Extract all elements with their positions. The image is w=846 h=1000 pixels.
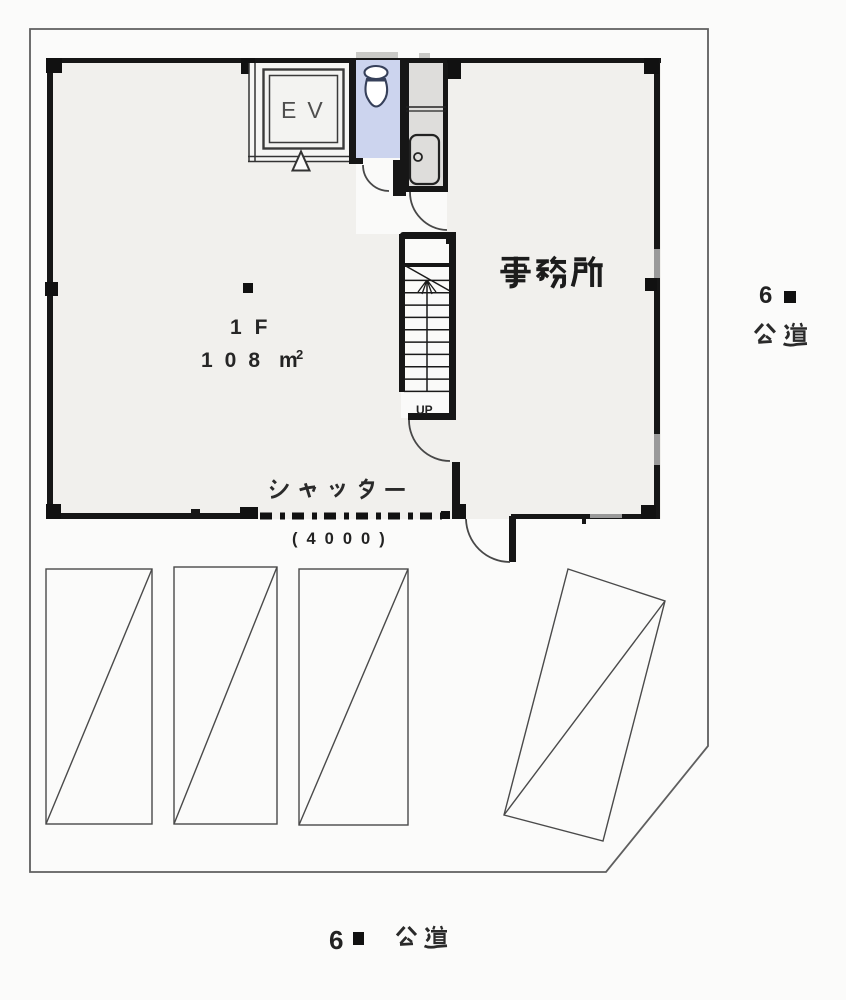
svg-text:6: 6	[759, 282, 772, 309]
svg-text:1F: 1F	[230, 316, 281, 339]
svg-text:2: 2	[296, 347, 303, 362]
svg-text:m: m	[279, 349, 298, 372]
svg-text:(4000): (4000)	[292, 530, 394, 548]
svg-text:UP: UP	[416, 403, 433, 417]
svg-text:6: 6	[329, 925, 343, 955]
svg-text:108: 108	[201, 349, 272, 372]
svg-text:EV: EV	[281, 97, 334, 123]
